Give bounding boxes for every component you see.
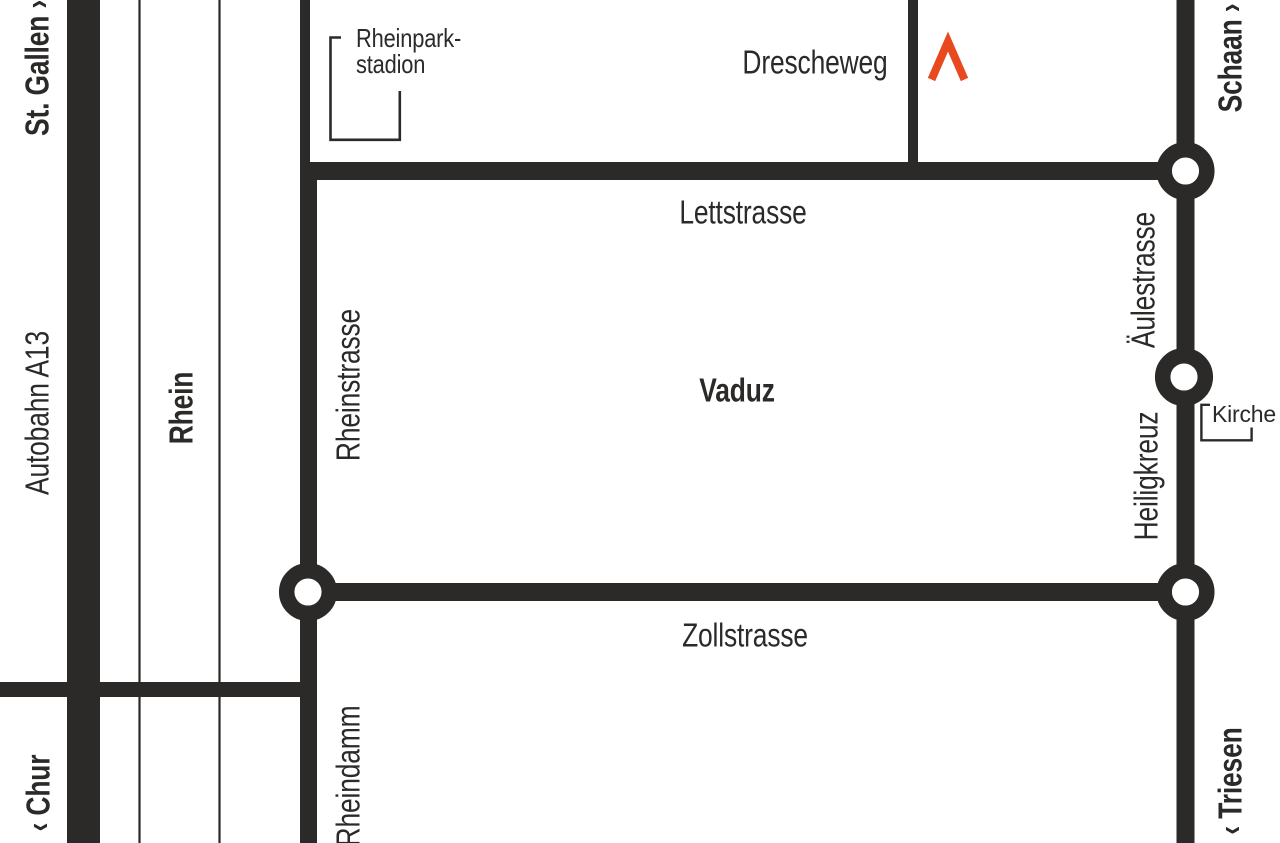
heiligkreuz-label: Heiligkreuz: [1130, 412, 1163, 541]
rheinpark-stadion-label-line1: Rheinpark-: [356, 25, 461, 51]
vaduz-schematic-map: St. Gallen › Schaan › ‹ Chur ‹ Triesen A…: [0, 0, 1280, 843]
destination-st-gallen-label: St. Gallen ›: [21, 0, 54, 136]
kirche-label: Kirche: [1212, 403, 1276, 426]
rhine-crossing-road: [0, 682, 317, 697]
roundabout-lettstrasse-aeulestrasse: [1164, 150, 1207, 193]
rheinstrasse-rheindamm-road: [300, 162, 317, 843]
roundabout-aeulestrasse-kirche: [1163, 356, 1206, 399]
roundabout-zollstrasse-heiligkreuz: [1164, 571, 1207, 614]
aeulestrasse-heiligkreuz-road: [1177, 0, 1195, 843]
lettstrasse-road: [300, 162, 1185, 180]
drescheweg-label: Drescheweg: [742, 46, 887, 79]
rheinpark-stadion-label: Rheinpark- stadion: [356, 25, 461, 77]
autobahn-a13-road: [67, 0, 100, 843]
rhein-river-label: Rhein: [165, 372, 198, 445]
rheinpark-stadion-label-line2: stadion: [356, 51, 461, 77]
zollstrasse-road: [308, 583, 1185, 601]
city-vaduz-label: Vaduz: [699, 374, 774, 407]
drescheweg-road: [908, 0, 918, 171]
lettstrasse-label: Lettstrasse: [679, 196, 806, 229]
aeulestrasse-label: Äulestrasse: [1127, 212, 1160, 348]
destination-chur-label: ‹ Chur: [22, 755, 55, 832]
destination-triesen-label: ‹ Triesen: [1214, 727, 1247, 834]
roundabout-zollstrasse-rheinstrasse: [287, 571, 330, 614]
destination-schaan-label: Schaan ›: [1214, 4, 1247, 113]
rhein-river-bank-east-line: [218, 0, 220, 843]
stadium-access-road: [300, 0, 310, 171]
zollstrasse-label: Zollstrasse: [682, 619, 808, 652]
autobahn-a13-label: Autobahn A13: [21, 331, 54, 495]
rheindamm-label: Rheindamm: [332, 706, 365, 843]
rheinstrasse-label: Rheinstrasse: [332, 309, 365, 461]
red-chevron-location-marker-icon: [932, 42, 965, 80]
rhein-river-bank-west-line: [138, 0, 140, 843]
